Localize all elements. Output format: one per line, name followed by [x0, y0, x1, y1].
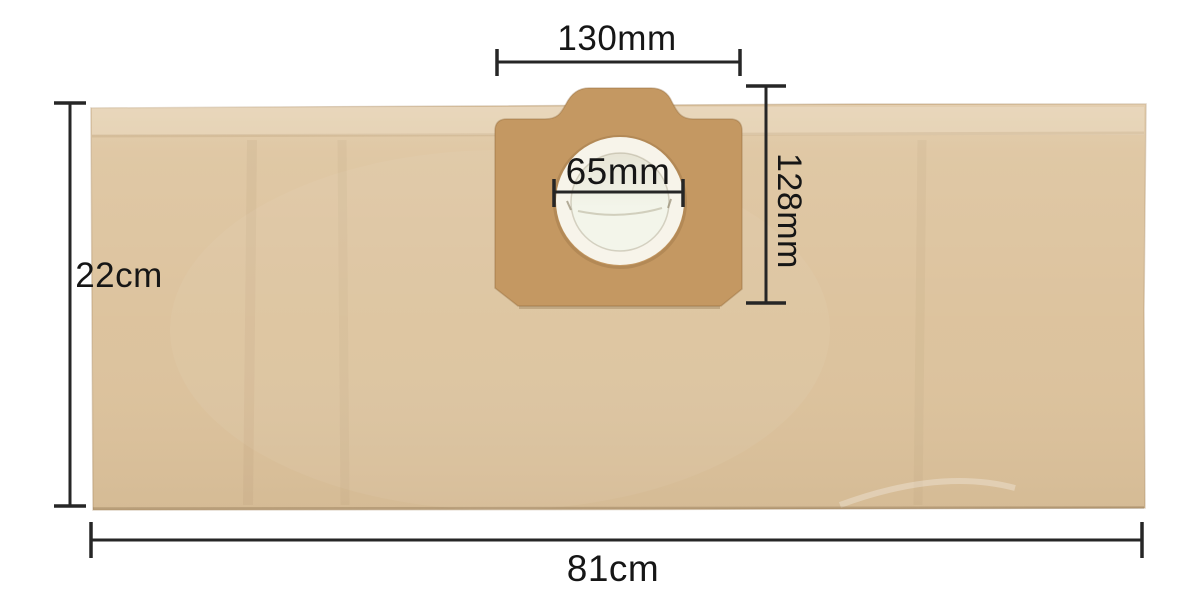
collar-width-label: 130mm	[550, 20, 684, 58]
hole-diameter-label: 65mm	[556, 153, 680, 191]
dim-bag-height	[54, 103, 86, 506]
bag-bottom-edge-shadow	[93, 508, 1144, 509]
bag-height-label: 22cm	[66, 257, 172, 295]
collar-height-label: 128mm	[768, 148, 808, 274]
vacuum-bag-illustration	[0, 0, 1200, 611]
bag-width-label: 81cm	[546, 550, 680, 588]
bag-crease-right	[918, 140, 922, 505]
vacuum-bag-dimension-diagram: 130mm 65mm 128mm 22cm 81cm	[0, 0, 1200, 611]
